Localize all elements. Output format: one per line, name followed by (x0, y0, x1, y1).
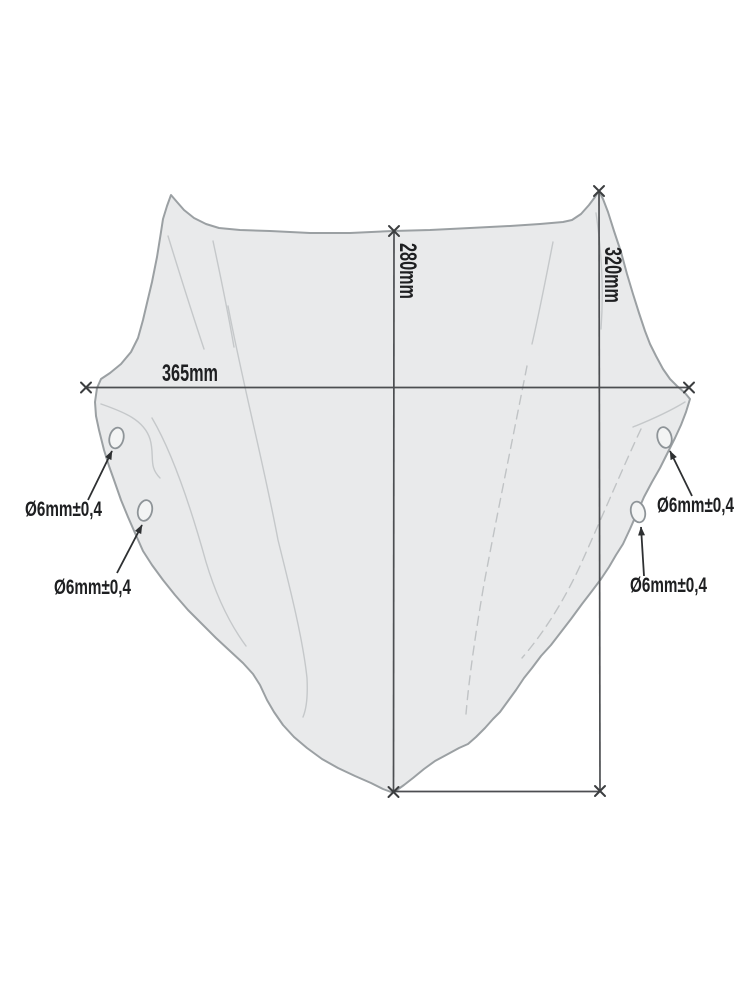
leader-arrow-right-upper (670, 451, 692, 496)
hole-label-left-lower: Ø6mm±0,4 (54, 576, 131, 599)
dimension-line-height-center (394, 231, 395, 792)
dimension-label-height-right: 320mm (599, 247, 626, 303)
dimension-label-width: 365mm (162, 360, 218, 387)
leader-arrow-left-lower (117, 525, 142, 573)
technical-drawing-canvas: 365mm 280mm 320mm Ø6mm±0,4 Ø6mm±0,4 Ø6mm… (0, 0, 750, 1000)
hole-label-left-upper: Ø6mm±0,4 (25, 498, 102, 521)
windscreen-diagram: 365mm 280mm 320mm Ø6mm±0,4 Ø6mm±0,4 Ø6mm… (0, 0, 750, 1000)
leader-arrow-right-lower (641, 527, 644, 576)
leader-arrow-left-upper (88, 451, 112, 500)
hole-label-right-upper: Ø6mm±0,4 (657, 494, 734, 517)
dimension-label-height-center: 280mm (394, 243, 421, 299)
hole-label-right-lower: Ø6mm±0,4 (630, 574, 707, 597)
